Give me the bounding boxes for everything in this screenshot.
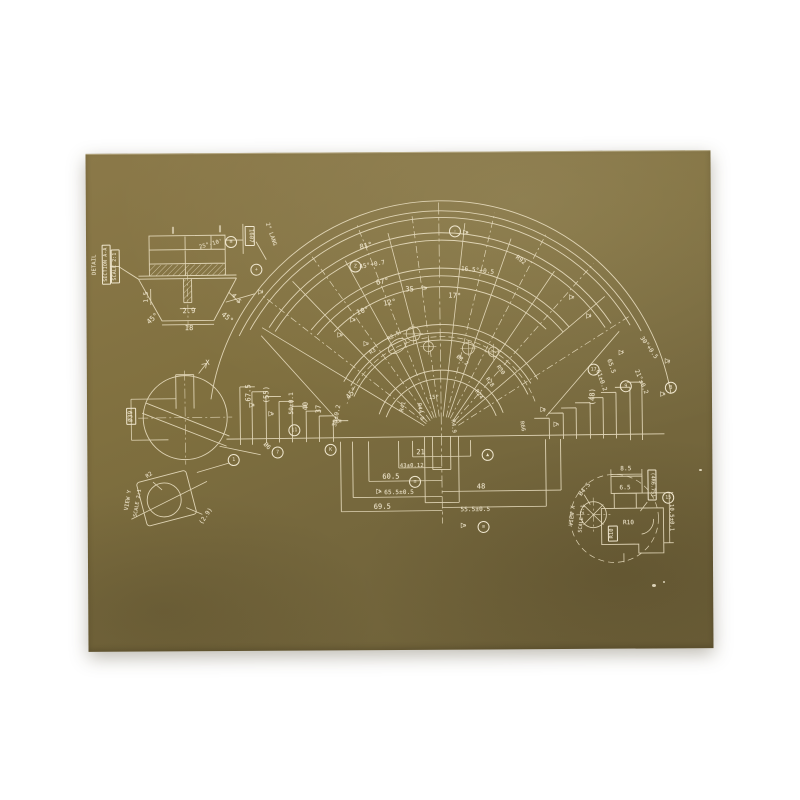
- boxed-label: Ø39: [126, 408, 136, 425]
- flag-letter: p: [424, 287, 427, 292]
- dimension-label: 21: [416, 449, 425, 456]
- flag-mark: ▷f: [619, 349, 625, 358]
- dimension-label: (2.9): [199, 507, 214, 526]
- dimension-label: R41: [400, 401, 408, 412]
- drawing-content: 81°45°+0.767°3516.5°+0.517°12°10°R9230°+…: [0, 0, 800, 800]
- dimension-label: 48: [477, 483, 486, 490]
- dimension-label: 45°: [220, 311, 234, 325]
- dimension-label: R10: [623, 520, 634, 526]
- flag-letter: e: [572, 296, 575, 301]
- photo-speck: [663, 581, 665, 583]
- dimension-label: ∥: [218, 226, 222, 233]
- dimension-label: 69.5: [374, 504, 391, 511]
- photo-speck: [699, 469, 702, 471]
- dimension-label: R30: [494, 365, 504, 377]
- flag-letter: b: [340, 334, 343, 339]
- circled-mark: 1: [228, 454, 240, 466]
- dimension-label: 21°±0.2: [633, 369, 649, 395]
- dimension-label: 65.5: [605, 358, 615, 374]
- dimension-label: Ø8.2: [455, 355, 469, 368]
- flag-letter: a: [252, 404, 255, 409]
- flag-mark: ▷k: [376, 488, 382, 497]
- dimension-label: 67.5: [245, 384, 252, 401]
- dimension-label: SCALE 2:1: [134, 489, 143, 517]
- dimension-label: 17°: [448, 292, 461, 300]
- circled-mark: 9: [620, 380, 632, 392]
- flag-mark: ▷h: [554, 421, 560, 430]
- dimension-label: 18: [185, 325, 194, 332]
- dimension-label: 43±0.12: [400, 464, 424, 470]
- flag-mark: ▷a: [350, 316, 356, 325]
- boxed-label: SECTION A-A: [102, 244, 111, 284]
- dimension-label: VIEW Y: [125, 490, 134, 511]
- dimension-label: 40: [303, 402, 310, 411]
- flag-letter: e: [466, 231, 469, 236]
- flag-letter: c: [339, 420, 342, 425]
- circled-mark: 7: [272, 446, 284, 458]
- flag-mark: ▷g: [540, 406, 546, 415]
- flag-letter: d: [260, 291, 263, 296]
- dimension-label: 45°+0.7: [359, 260, 386, 271]
- flag-letter: m: [463, 524, 466, 529]
- circled-mark: B: [665, 382, 677, 394]
- dimension-label: 8.5: [620, 466, 631, 472]
- flag-letter: d: [589, 315, 592, 320]
- boxed-label: 1607: [245, 226, 255, 246]
- dimension-label: 6.5: [619, 485, 630, 491]
- flag-mark: ▷m: [461, 522, 467, 531]
- flag-letter: k: [379, 490, 382, 495]
- dimension-label: 30°+0.5: [638, 336, 658, 361]
- dimension-label: 4.5: [230, 293, 242, 305]
- dimension-label: 35: [405, 286, 414, 293]
- dimension-label: 55.5±0.5: [460, 507, 490, 513]
- dimension-label: R92: [514, 255, 526, 267]
- dimension-label: 45°: [345, 386, 359, 400]
- dimension-label: 15°: [429, 396, 439, 402]
- flag-mark: ▷e: [463, 229, 469, 238]
- dimension-label: R2: [146, 472, 155, 480]
- dimension-label: 37: [316, 405, 323, 414]
- circled-mark: ≡: [409, 476, 421, 488]
- dimension-label: 10.5±0.1: [668, 504, 674, 531]
- dimension-label: R28: [484, 377, 494, 389]
- dimension-label: 67°: [376, 278, 390, 287]
- flag-mark: ▷e: [569, 293, 575, 302]
- flag-mark: ▷a: [249, 401, 255, 410]
- dimension-label: (55): [263, 386, 270, 403]
- boxed-label: (4R6.75): [647, 469, 656, 500]
- annotation-layer: 81°45°+0.767°3516.5°+0.517°12°10°R9230°+…: [0, 0, 800, 800]
- dimension-label: Ø4.5: [578, 482, 592, 497]
- circled-mark: ≡: [225, 236, 237, 248]
- dimension-label: ∥: [171, 227, 175, 234]
- flag-letter: b: [271, 413, 274, 418]
- circled-mark: 15: [662, 492, 674, 504]
- flag-mark: ▷d: [586, 312, 592, 321]
- photo-speck: [652, 584, 656, 587]
- circled-mark: Z: [349, 260, 361, 272]
- flag-letter: c: [366, 342, 369, 347]
- flag-mark: ▷b: [337, 331, 343, 340]
- flag-letter: h: [556, 423, 559, 428]
- dimension-label: 12°: [383, 298, 397, 307]
- dimension-label: 50±0.1: [289, 392, 295, 414]
- dimension-label: R3: [369, 348, 378, 356]
- flag-letter: g: [667, 360, 670, 365]
- circled-mark: K: [325, 444, 337, 456]
- dimension-label: 60.5: [382, 474, 399, 481]
- flag-mark: ▷g: [665, 357, 671, 366]
- flag-letter: f: [621, 351, 624, 356]
- dimension-label: DETAIL: [92, 254, 98, 275]
- dimension-label: R44.9: [415, 403, 424, 421]
- circled-mark: ≡: [477, 521, 489, 533]
- dimension-label: 81°: [359, 242, 373, 252]
- circled-mark: ▲: [482, 449, 494, 461]
- flag-letter: h: [663, 393, 666, 398]
- dimension-label: 1.5: [144, 291, 150, 302]
- dimension-label: 10°: [356, 306, 371, 317]
- flag-mark: ▷d: [258, 288, 264, 297]
- boxed-label: R10: [608, 525, 618, 541]
- circled-mark: 11: [288, 424, 300, 436]
- dimension-label: 2.9: [182, 308, 195, 315]
- dimension-label: 16.5°+0.5: [460, 266, 494, 276]
- dimension-label: 65.5±0.5: [384, 490, 414, 496]
- dimension-label: R66: [518, 421, 525, 432]
- flag-mark: ▷c: [364, 340, 370, 349]
- dimension-label: 45°: [146, 312, 160, 326]
- dimension-label: R24: [473, 389, 483, 401]
- dimension-label: X: [205, 360, 209, 367]
- flag-mark: ▷c: [336, 417, 342, 426]
- flag-mark: ▷b: [268, 410, 274, 419]
- dimension-label: 2° LANG: [264, 222, 277, 246]
- boxed-label: SCALE 2:1: [111, 249, 120, 283]
- dimension-label: VIEW X: [570, 505, 578, 526]
- photo-of-engineering-drawing: 81°45°+0.767°3516.5°+0.517°12°10°R9230°+…: [0, 0, 800, 800]
- dimension-label: 25°-10': [199, 239, 223, 251]
- circled-mark: 17: [588, 364, 600, 376]
- dimension-label: (48): [589, 388, 596, 405]
- dimension-label: R4.9: [449, 419, 456, 433]
- circled-mark: +: [250, 264, 262, 276]
- dimension-label: SCALE 2:1: [578, 505, 586, 533]
- dimension-label: Ø6: [262, 442, 272, 451]
- flag-mark: ▷h: [660, 390, 666, 399]
- flag-mark: ▷p: [422, 284, 428, 293]
- flag-letter: a: [353, 319, 356, 324]
- circled-mark: -: [449, 225, 461, 237]
- flag-letter: g: [543, 408, 546, 413]
- dimension-label: R2.5: [387, 331, 402, 343]
